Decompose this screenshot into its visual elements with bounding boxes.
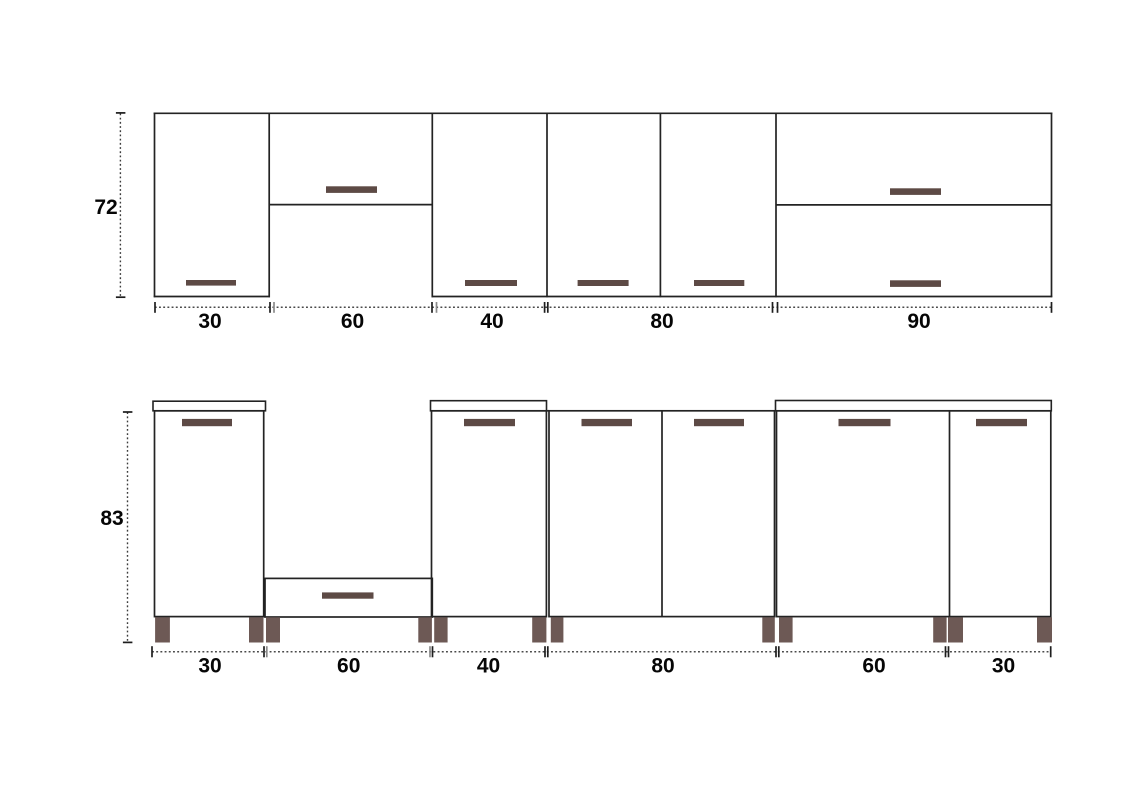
svg-text:60: 60: [337, 655, 360, 678]
svg-text:30: 30: [992, 655, 1015, 678]
svg-text:40: 40: [480, 310, 503, 333]
svg-text:60: 60: [341, 310, 364, 333]
svg-text:83: 83: [100, 507, 123, 530]
svg-text:30: 30: [198, 655, 221, 678]
svg-text:80: 80: [651, 655, 674, 678]
svg-text:40: 40: [477, 655, 500, 678]
svg-text:60: 60: [862, 655, 885, 678]
svg-text:80: 80: [650, 310, 673, 333]
svg-text:30: 30: [198, 310, 221, 333]
svg-text:90: 90: [907, 310, 930, 333]
svg-text:72: 72: [94, 196, 117, 219]
